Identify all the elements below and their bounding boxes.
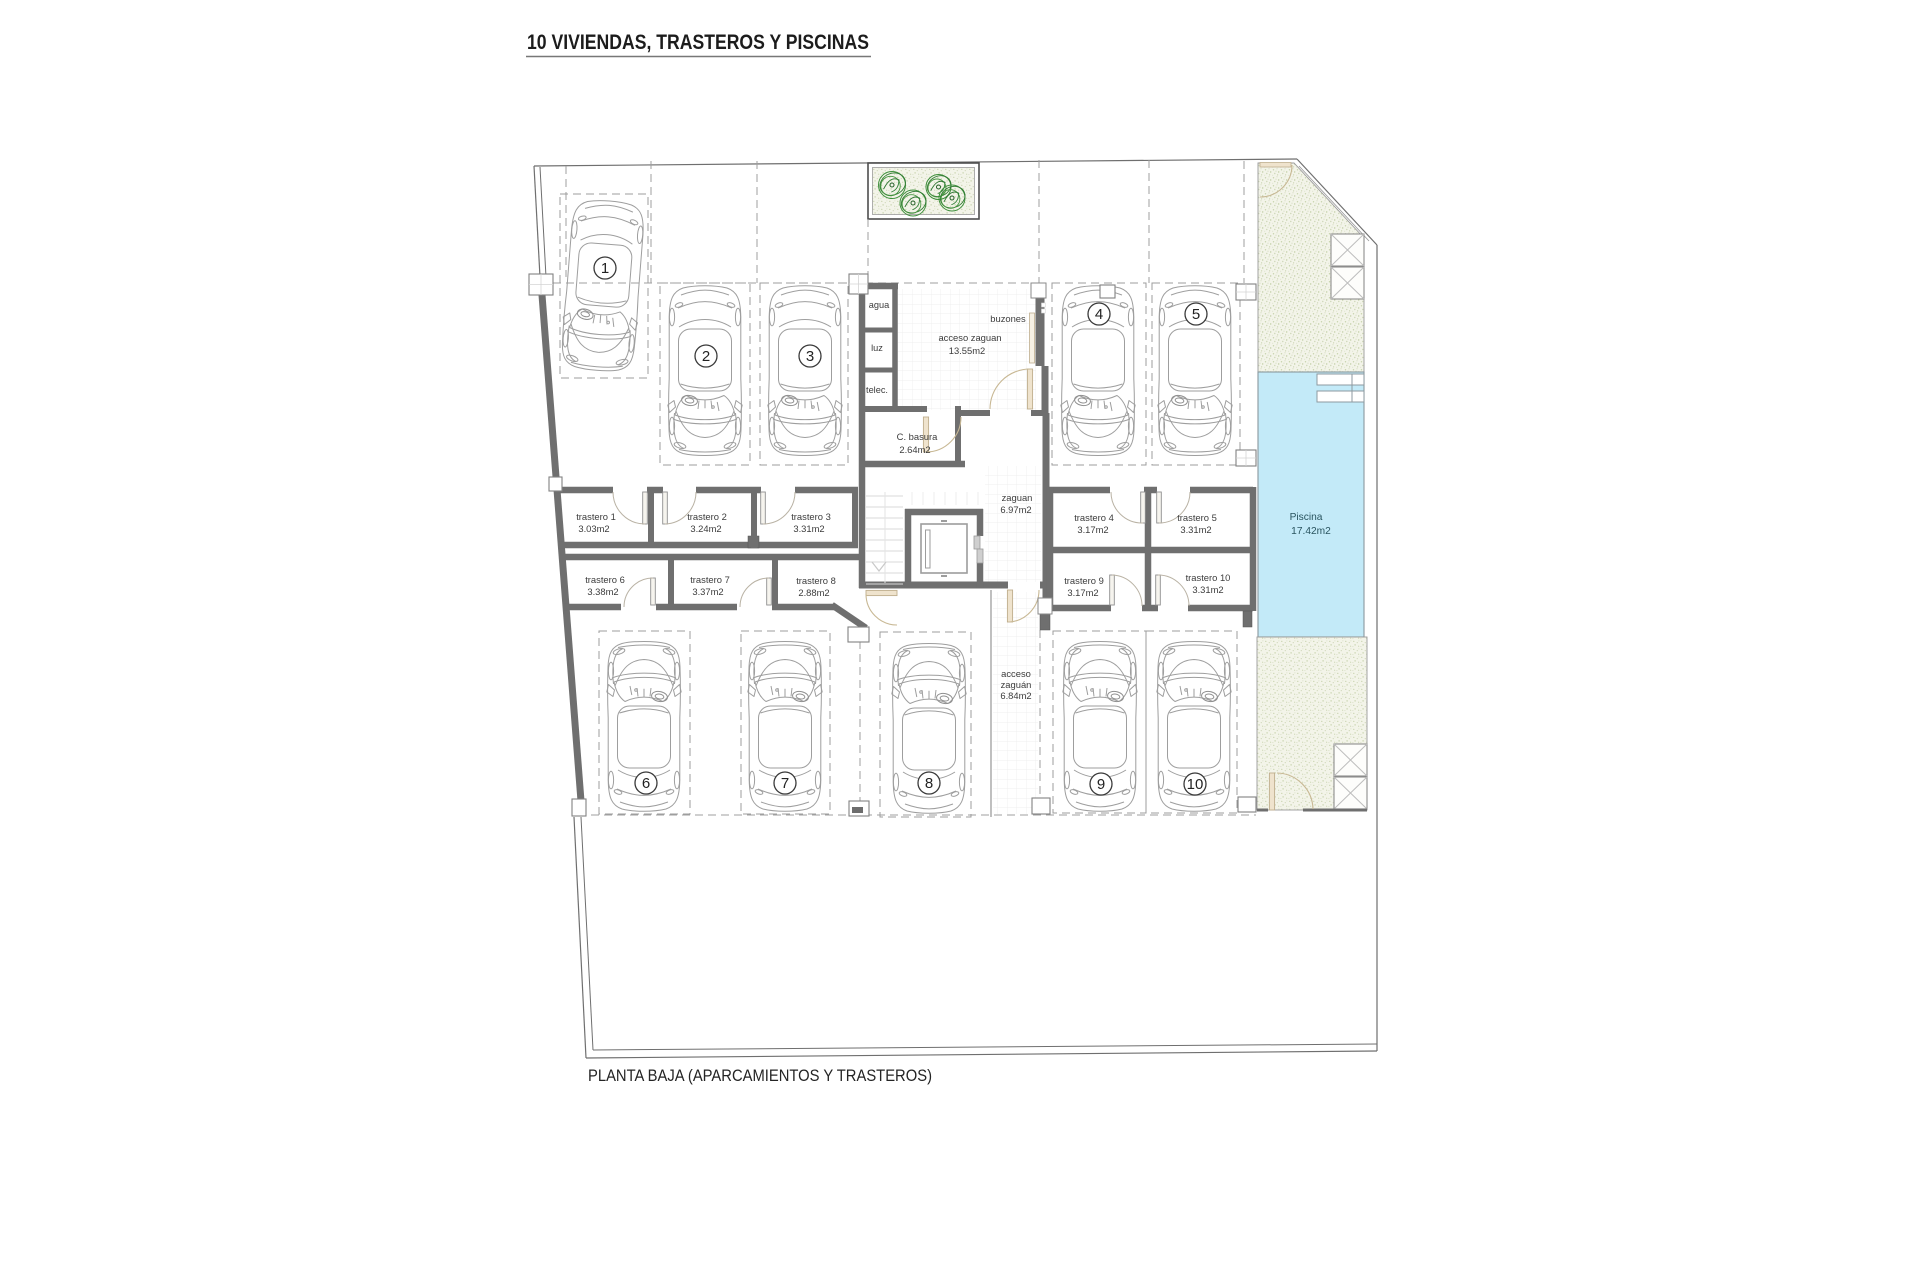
svg-text:3.17m2: 3.17m2	[1067, 587, 1098, 598]
svg-text:3.31m2: 3.31m2	[1180, 524, 1211, 535]
svg-text:trastero 4: trastero 4	[1074, 512, 1114, 523]
svg-text:3.17m2: 3.17m2	[1077, 524, 1108, 535]
svg-text:trastero 1: trastero 1	[576, 511, 616, 522]
svg-text:trastero 5: trastero 5	[1177, 512, 1217, 523]
svg-text:6.84m2: 6.84m2	[1000, 690, 1031, 701]
svg-text:3.03m2: 3.03m2	[578, 523, 609, 534]
svg-text:2.64m2: 2.64m2	[899, 444, 930, 455]
svg-text:trastero 6: trastero 6	[585, 574, 625, 585]
svg-text:3.38m2: 3.38m2	[587, 586, 618, 597]
svg-text:10: 10	[1187, 776, 1204, 793]
svg-text:trastero 10: trastero 10	[1186, 572, 1231, 583]
svg-text:6.97m2: 6.97m2	[1000, 504, 1031, 515]
svg-text:trastero 9: trastero 9	[1064, 575, 1104, 586]
svg-text:acceso: acceso	[1001, 668, 1031, 679]
svg-text:Piscina: Piscina	[1290, 512, 1323, 523]
svg-text:4: 4	[1095, 306, 1103, 323]
svg-text:trastero 7: trastero 7	[690, 574, 730, 585]
svg-text:10 VIVIENDAS, TRASTEROS Y PISC: 10 VIVIENDAS, TRASTEROS Y PISCINAS	[527, 30, 869, 54]
svg-text:telec.: telec.	[866, 385, 888, 395]
svg-text:acceso zaguan: acceso zaguan	[938, 332, 1001, 343]
svg-text:8: 8	[925, 775, 933, 792]
svg-text:13.55m2: 13.55m2	[949, 345, 985, 356]
svg-text:zaguán: zaguán	[1001, 679, 1032, 690]
svg-text:3.37m2: 3.37m2	[692, 586, 723, 597]
svg-text:1: 1	[601, 260, 609, 277]
svg-text:buzones: buzones	[990, 313, 1026, 324]
svg-text:7: 7	[781, 775, 789, 792]
svg-text:3.24m2: 3.24m2	[690, 523, 721, 534]
svg-text:C. basura: C. basura	[897, 431, 938, 442]
svg-text:trastero 8: trastero 8	[796, 575, 836, 586]
svg-text:zaguan: zaguan	[1002, 492, 1033, 503]
svg-text:9: 9	[1097, 776, 1105, 793]
svg-text:5: 5	[1192, 306, 1200, 323]
svg-text:PLANTA BAJA (APARCAMIENTOS Y T: PLANTA BAJA (APARCAMIENTOS Y TRASTEROS)	[588, 1067, 932, 1085]
svg-text:trastero 2: trastero 2	[687, 511, 727, 522]
svg-text:17.42m2: 17.42m2	[1291, 526, 1331, 537]
svg-text:luz: luz	[871, 343, 883, 353]
svg-text:agua: agua	[869, 300, 890, 310]
svg-text:2: 2	[702, 348, 710, 365]
svg-text:2.88m2: 2.88m2	[798, 587, 829, 598]
svg-text:3.31m2: 3.31m2	[793, 523, 824, 534]
svg-text:6: 6	[642, 775, 650, 792]
svg-text:3.31m2: 3.31m2	[1192, 584, 1223, 595]
svg-text:trastero 3: trastero 3	[791, 511, 831, 522]
svg-text:3: 3	[806, 348, 814, 365]
